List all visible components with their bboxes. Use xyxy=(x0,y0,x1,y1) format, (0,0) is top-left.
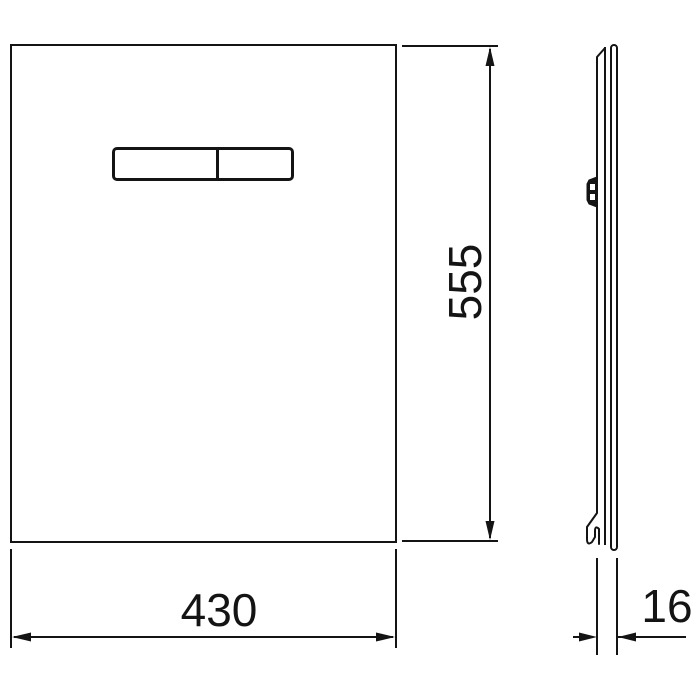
mounting-clip-notch-top xyxy=(590,184,595,190)
arrowhead-left-icon xyxy=(618,633,636,642)
arrowhead-right-icon xyxy=(376,633,395,642)
dimension-label-height: 555 xyxy=(442,244,488,321)
actuator-button-outline xyxy=(112,147,294,181)
dimension-label-width: 430 xyxy=(181,587,258,633)
side-view-profile xyxy=(584,40,628,556)
arrowhead-down-icon xyxy=(486,521,495,540)
actuator-button-divider xyxy=(216,150,219,178)
arrowhead-left-icon xyxy=(12,633,31,642)
mounting-clip xyxy=(587,177,597,207)
side-view-glass-layer xyxy=(611,45,617,550)
dimension-label-depth: 16 xyxy=(641,583,692,629)
mounting-clip-notch-bottom xyxy=(590,194,595,200)
technical-drawing-canvas: 555 430 16 xyxy=(0,0,700,700)
dimension-line-depth-left xyxy=(573,628,598,646)
bottom-hook xyxy=(587,513,599,544)
side-view-carrier-back-edge xyxy=(597,48,605,513)
front-view-panel-outline xyxy=(10,44,397,543)
arrowhead-up-icon xyxy=(486,47,495,66)
arrowhead-right-icon xyxy=(579,633,597,642)
